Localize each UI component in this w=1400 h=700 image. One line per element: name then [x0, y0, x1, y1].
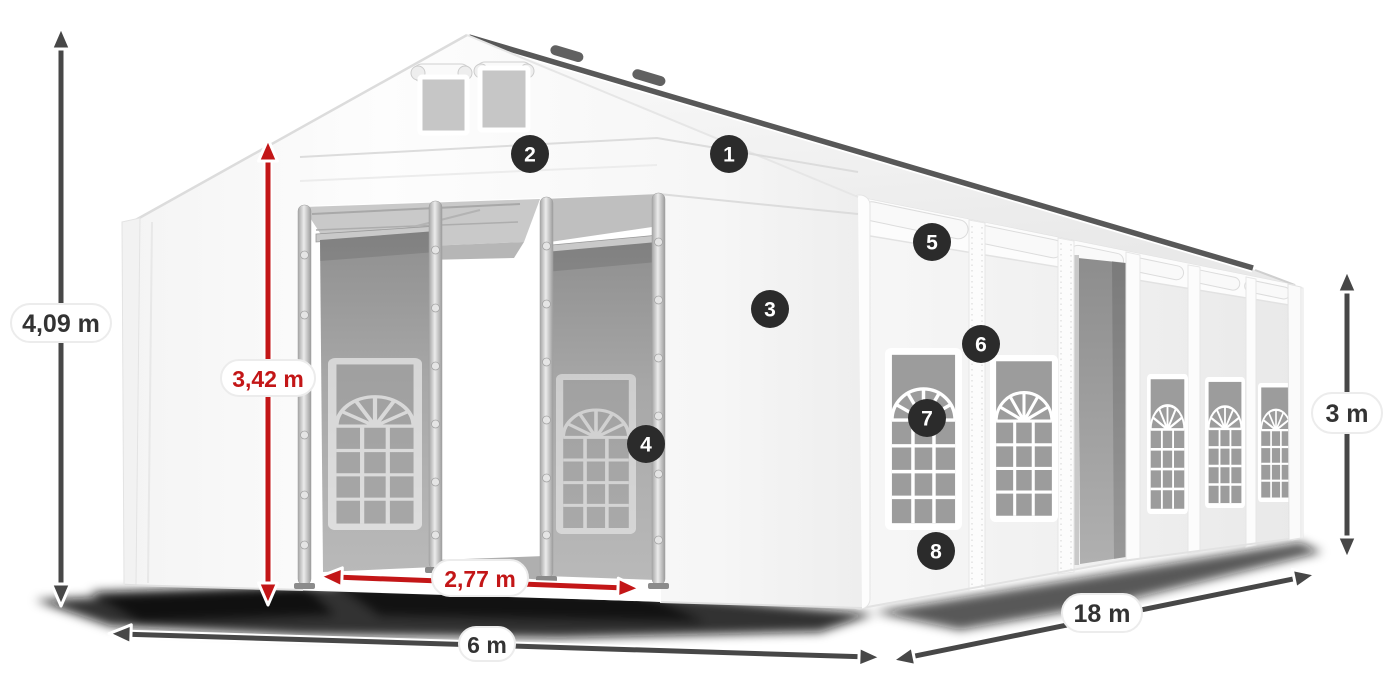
feature-badge-5[interactable]: 5: [913, 223, 951, 261]
arrow-up-icon: [52, 27, 71, 49]
doorway-pole: [1074, 255, 1079, 565]
arrow-right-icon: [859, 647, 882, 667]
entrance-width-label: 2,77 m: [444, 566, 516, 592]
dimension-side-wall-height: 3 m: [1312, 270, 1382, 559]
badge-number: 6: [975, 334, 987, 357]
side-doorway-opening: [1074, 255, 1126, 565]
side-window-1: [885, 348, 962, 530]
curtain-window-print: [556, 374, 636, 534]
entrance-curtain-right: [541, 235, 659, 580]
entrance-height-label: 3,42 m: [232, 366, 304, 392]
side-window-2: [990, 355, 1058, 522]
feature-badge-7[interactable]: 7: [908, 399, 946, 437]
badge-number: 7: [921, 408, 933, 431]
side-wall-height-label: 3 m: [1325, 400, 1368, 428]
badge-number: 8: [930, 541, 942, 564]
feature-badge-6[interactable]: 6: [962, 325, 1000, 363]
badge-number: 4: [640, 434, 652, 457]
feature-badge-1[interactable]: 1: [710, 135, 748, 173]
badge-number: 3: [764, 299, 776, 322]
entrance-curtain-left: [316, 226, 438, 572]
gable-vent-window: [480, 68, 528, 130]
tent-diagram-canvas: 4,09 m 3,42 m 2,77 m 6 m: [0, 0, 1400, 700]
front-width-label: 6 m: [467, 632, 507, 658]
arrow-left-icon: [890, 647, 915, 670]
feature-badge-2[interactable]: 2: [511, 135, 549, 173]
arrow-right-icon: [1292, 565, 1317, 588]
feature-badge-4[interactable]: 4: [627, 425, 665, 463]
gable-vent-window: [420, 77, 467, 133]
arrow-up-icon: [1338, 270, 1357, 292]
feature-badge-3[interactable]: 3: [751, 290, 789, 328]
badge-number: 1: [723, 144, 735, 167]
arrow-down-icon: [1338, 537, 1357, 559]
back-corner-roll: [1288, 284, 1301, 540]
side-window-4: [1205, 377, 1245, 508]
front-entrance-opening: [294, 193, 669, 602]
side-length-label: 18 m: [1074, 600, 1131, 628]
tent-product-diagram: 4,09 m 3,42 m 2,77 m 6 m: [0, 0, 1400, 700]
total-height-label: 4,09 m: [22, 310, 100, 338]
feature-badge-8[interactable]: 8: [917, 532, 955, 570]
side-window-3: [1147, 374, 1188, 514]
dimension-total-height: 4,09 m: [11, 27, 111, 606]
arrow-left-icon: [109, 624, 132, 644]
badge-number: 5: [926, 232, 938, 255]
badge-number: 2: [524, 144, 536, 167]
curtain-window-print: [328, 358, 422, 530]
